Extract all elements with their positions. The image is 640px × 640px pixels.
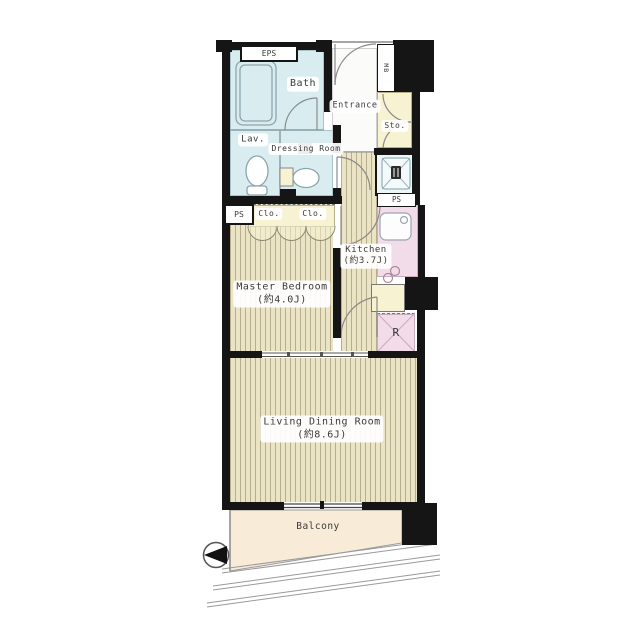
lavatory-label: Lav.: [238, 133, 268, 146]
window-mullion: [320, 501, 324, 509]
master-bedroom-label: Master Bedroom (約4.0J): [233, 281, 330, 308]
closet-right-label: Clo.: [299, 208, 326, 220]
slider-tick: [287, 352, 290, 356]
ps-bedroom-label: PS: [234, 211, 244, 219]
floorplan-canvas: EPS MB PS PS Bath Entrance Sto. Lav. Dre…: [0, 0, 640, 640]
closet-left-label: Clo.: [255, 208, 282, 220]
balcony-railing: [207, 540, 440, 607]
wall: [333, 188, 341, 204]
pillar-block: [402, 503, 437, 545]
kitchen-name: Kitchen: [343, 245, 388, 256]
master-bedroom-name: Master Bedroom: [236, 282, 327, 295]
living-dining-size: (約8.6J): [263, 429, 380, 442]
wall: [368, 351, 418, 358]
balcony-window: [284, 504, 362, 508]
washer-space: [377, 153, 415, 194]
eps-box: EPS: [240, 45, 298, 62]
slider-tick: [351, 352, 354, 356]
living-dining-label: Living Dining Room (約8.6J): [260, 416, 383, 443]
kitchen-label: Kitchen (約3.7J): [340, 244, 391, 269]
ps-laundry-label: PS: [392, 196, 401, 204]
balcony-label: Balcony: [293, 520, 343, 534]
living-dining-name: Living Dining Room: [263, 417, 380, 430]
eps-label: EPS: [262, 50, 276, 58]
kitchen-size: (約3.7J): [343, 256, 388, 267]
wall: [222, 196, 342, 204]
storage-label: Sto.: [381, 120, 408, 132]
dressing-room: [280, 130, 333, 196]
wall: [417, 310, 425, 504]
entrance-label: Entrance: [330, 100, 381, 113]
wall: [374, 148, 420, 155]
dressing-room-label: Dressing Room: [268, 143, 343, 155]
slider-tick: [320, 352, 323, 356]
mb-label: MB: [383, 63, 390, 73]
wall: [222, 502, 284, 510]
bath-label: Bath: [287, 77, 319, 92]
refrigerator-label: R: [389, 325, 402, 341]
pillar-block: [405, 277, 438, 310]
wall: [418, 205, 425, 277]
kitchen-cabinet: [371, 284, 405, 312]
bedroom-sliding-door: [262, 353, 368, 357]
north-arrow-icon: [204, 543, 229, 568]
ps-box-bedroom: PS: [224, 204, 254, 225]
wall: [222, 42, 230, 510]
ps-box-laundry: PS: [377, 193, 416, 207]
elevator-block: [393, 40, 434, 92]
wall: [222, 351, 262, 358]
meter-box: MB: [377, 44, 395, 92]
master-bedroom-size: (約4.0J): [236, 294, 327, 307]
